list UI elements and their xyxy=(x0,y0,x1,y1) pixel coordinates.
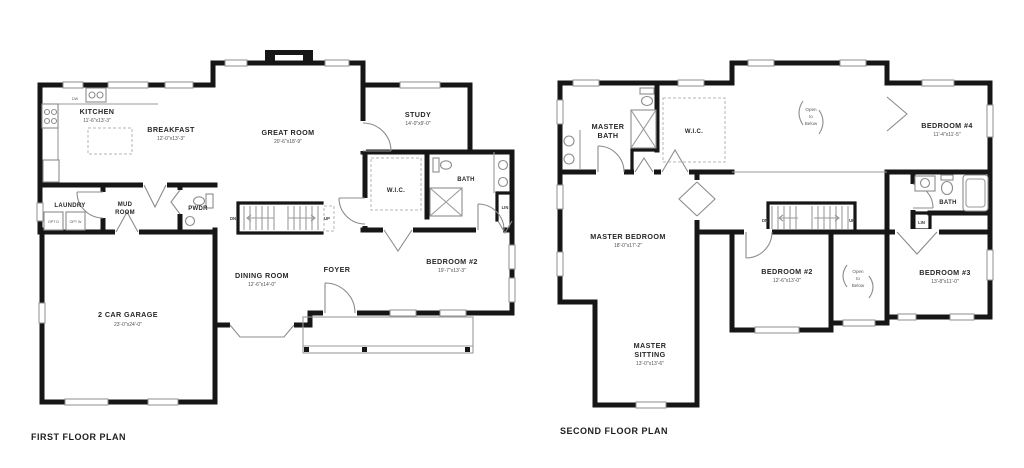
sf-master-sitting-label1: MASTER xyxy=(634,341,667,350)
sf-wic-label: W.I.C. xyxy=(685,129,703,135)
ff-stairs xyxy=(244,206,318,230)
sf-open-below-top-3: Below xyxy=(805,121,818,126)
sf-open-below-top-1: Open xyxy=(805,107,817,112)
sf-master-bedroom-label: MASTER BEDROOM xyxy=(590,232,665,241)
sf-stairs-dn-label: DN xyxy=(762,218,768,223)
sf-bedroom2-dims: 12'-6"x13'-0" xyxy=(773,278,801,284)
ff-bedroom2-label: BEDROOM #2 xyxy=(426,257,478,266)
first-floor-plan: KITCHEN 11'-6"x13'-3" BREAKFAST 12'-0"x1… xyxy=(31,50,515,442)
sf-master-sitting-dims: 13'-0"x13'-6" xyxy=(636,361,664,367)
ff-breakfast-label: BREAKFAST xyxy=(147,125,195,134)
sf-master-bath-label2: BATH xyxy=(597,131,618,140)
sf-bath-label: BATH xyxy=(939,200,956,206)
sf-open-below-top-2: to xyxy=(809,114,813,119)
sf-bedroom3-dims: 13'-8"x11'-0" xyxy=(931,279,959,285)
ff-garage-dims: 23'-0"x24'-0" xyxy=(114,322,142,328)
sf-open-below-small-3: Below xyxy=(852,283,865,288)
ff-dining-dims: 12'-6"x14'-0" xyxy=(248,282,276,288)
ff-dining-label: DINING ROOM xyxy=(235,271,289,280)
ff-mud-room-label1: MUD xyxy=(118,202,133,208)
ff-kitchen-fixtures xyxy=(42,88,158,182)
ff-great-room-label: GREAT ROOM xyxy=(262,128,315,137)
ff-stairs-up-label: UP xyxy=(324,216,330,221)
sf-bedroom2-label: BEDROOM #2 xyxy=(761,267,813,276)
sf-master-bedroom-dims: 18'-0"x17'-2" xyxy=(614,243,642,249)
floor-plan-drawing: KITCHEN 11'-6"x13'-3" BREAKFAST 12'-0"x1… xyxy=(0,0,1024,468)
second-floor-plan: MASTER BATH W.I.C. Open to Below BEDROOM… xyxy=(557,60,993,436)
sf-open-below-small-2: to xyxy=(856,276,860,281)
ff-foyer-label: FOYER xyxy=(324,265,351,274)
ff-porch xyxy=(303,317,473,353)
sf-bedroom4-dims: 11'-4"x11'-5" xyxy=(933,132,960,138)
ff-lin-label: LIN xyxy=(502,205,509,210)
ff-title: FIRST FLOOR PLAN xyxy=(31,432,126,442)
ff-stairs-dn-label: DN xyxy=(230,216,236,221)
ff-wic-shelving xyxy=(371,158,421,210)
ff-pwdr-label: PWDR xyxy=(188,206,208,212)
ff-breakfast-dims: 12'-0"x13'-3" xyxy=(157,136,185,142)
ff-garage-label: 2 CAR GARAGE xyxy=(98,310,158,319)
sf-stairs-up-label: UP xyxy=(849,218,855,223)
sf-bedroom3-label: BEDROOM #3 xyxy=(919,268,971,277)
sf-title: SECOND FLOOR PLAN xyxy=(560,426,668,436)
ff-opt-washer-label: OPT W xyxy=(70,220,82,224)
sf-stairs xyxy=(772,206,848,229)
ff-bedroom2-dims: 19'-7"x13'-3" xyxy=(438,268,466,274)
ff-mud-room-label2: ROOM xyxy=(115,210,135,216)
sf-interior-walls xyxy=(560,83,990,232)
ff-kitchen-dims: 11'-6"x13'-3" xyxy=(83,118,111,124)
ff-study-dims: 14'-0"x9'-0" xyxy=(405,121,430,127)
sf-open-below-small-1: Open xyxy=(852,269,864,274)
sf-master-sitting-label2: SITTING xyxy=(634,350,665,359)
ff-opt-dryer-label: OPT D xyxy=(48,220,59,224)
ff-kitchen-label: KITCHEN xyxy=(80,107,115,116)
ff-study-label: STUDY xyxy=(405,110,431,119)
ff-laundry-label: LAUNDRY xyxy=(54,203,85,209)
ff-great-room-dims: 20'-6"x18'-9" xyxy=(274,139,302,145)
ff-bath-label: BATH xyxy=(457,177,474,183)
sf-bedroom4-label: BEDROOM #4 xyxy=(921,121,973,130)
ff-dw-label: DW xyxy=(72,97,79,101)
ff-wic-label: W.I.C. xyxy=(387,188,405,194)
sf-lin-label: LIN xyxy=(918,220,925,225)
sf-master-bath-label1: MASTER xyxy=(592,122,625,131)
floor-plan-sheet: KITCHEN 11'-6"x13'-3" BREAKFAST 12'-0"x1… xyxy=(0,0,1024,468)
